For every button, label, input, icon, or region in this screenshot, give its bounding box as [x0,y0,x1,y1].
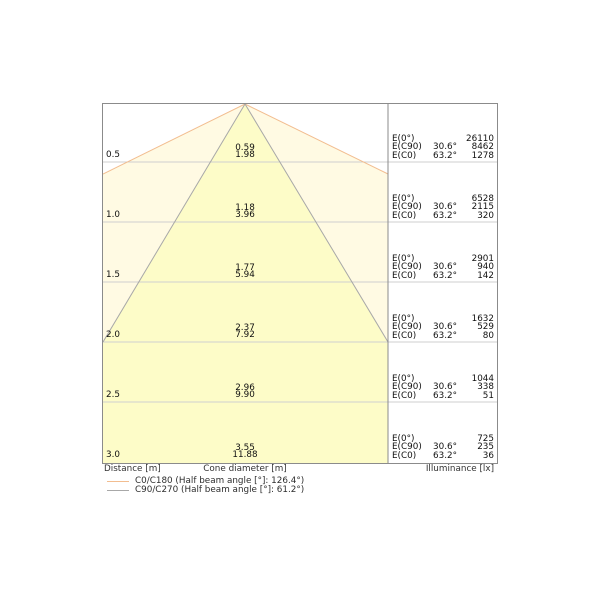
distance-tick-label: 0.5 [106,151,120,160]
ec0-value: 36 [457,452,494,460]
ec0-value: 320 [457,212,494,220]
illuminance-axis-label: Illuminance [lx] [394,464,494,474]
c90-c270-line-swatch [107,490,129,491]
cone-diameter-values: 2.37 7.92 [205,325,285,339]
cone-diameter-c0-value: 1.98 [205,152,285,159]
distance-axis-label: Distance [m] [104,464,161,474]
page: { "axes": { "distance_label": "Distance … [0,0,600,600]
illuminance-block: E(0°)1632 E(C90)30.6°529 E(C0)63.2°80 [392,315,494,340]
cone-diameter-axis-label: Cone diameter [m] [165,464,325,474]
ec0-angle: 63.2° [429,392,457,400]
cone-diameter-c0-value: 9.90 [205,392,285,399]
distance-tick-label: 2.5 [106,391,120,400]
ec0-angle: 63.2° [429,152,457,160]
cone-diameter-values: 1.77 5.94 [205,265,285,279]
ec0-value: 142 [457,272,494,280]
ec0-value: 1278 [457,152,494,160]
distance-tick-label: 1.0 [106,211,120,220]
legend-label: C90/C270 (Half beam angle [°]: 61.2°) [135,486,304,495]
cone-diameter-c0-value: 11.88 [205,452,285,459]
illuminance-block: E(0°)1044 E(C90)30.6°338 E(C0)63.2°51 [392,375,494,400]
ec0-label: E(C0) [392,212,429,220]
cone-diameter-c0-value: 7.92 [205,332,285,339]
cone-diameter-values: 3.55 11.88 [205,445,285,459]
distance-tick-label: 2.0 [106,331,120,340]
cone-diameter-c0-value: 5.94 [205,272,285,279]
ec0-angle: 63.2° [429,332,457,340]
ec0-label: E(C0) [392,152,429,160]
light-cone-diagram: 0.5 0.59 1.98 E(0°)26110 E(C90)30.6°8462… [102,103,498,464]
ec0-label: E(C0) [392,332,429,340]
distance-tick-label: 1.5 [106,271,120,280]
cone-diameter-values: 2.96 9.90 [205,385,285,399]
legend-item-c90-c270: C90/C270 (Half beam angle [°]: 61.2°) [107,486,304,495]
cone-diameter-values: 0.59 1.98 [205,145,285,159]
illuminance-block: E(0°)26110 E(C90)30.6°8462 E(C0)63.2°127… [392,135,494,160]
c0-c180-line-swatch [107,481,129,482]
illuminance-block: E(0°)725 E(C90)30.6°235 E(C0)63.2°36 [392,435,494,460]
ec0-value: 80 [457,332,494,340]
cone-diameter-values: 1.18 3.96 [205,205,285,219]
ec0-angle: 63.2° [429,212,457,220]
distance-tick-label: 3.0 [106,451,120,460]
ec0-label: E(C0) [392,272,429,280]
illuminance-block: E(0°)6528 E(C90)30.6°2115 E(C0)63.2°320 [392,195,494,220]
ec0-angle: 63.2° [429,272,457,280]
ec0-angle: 63.2° [429,452,457,460]
ec0-label: E(C0) [392,452,429,460]
cone-diameter-c0-value: 3.96 [205,212,285,219]
ec0-value: 51 [457,392,494,400]
illuminance-block: E(0°)2901 E(C90)30.6°940 E(C0)63.2°142 [392,255,494,280]
ec0-label: E(C0) [392,392,429,400]
